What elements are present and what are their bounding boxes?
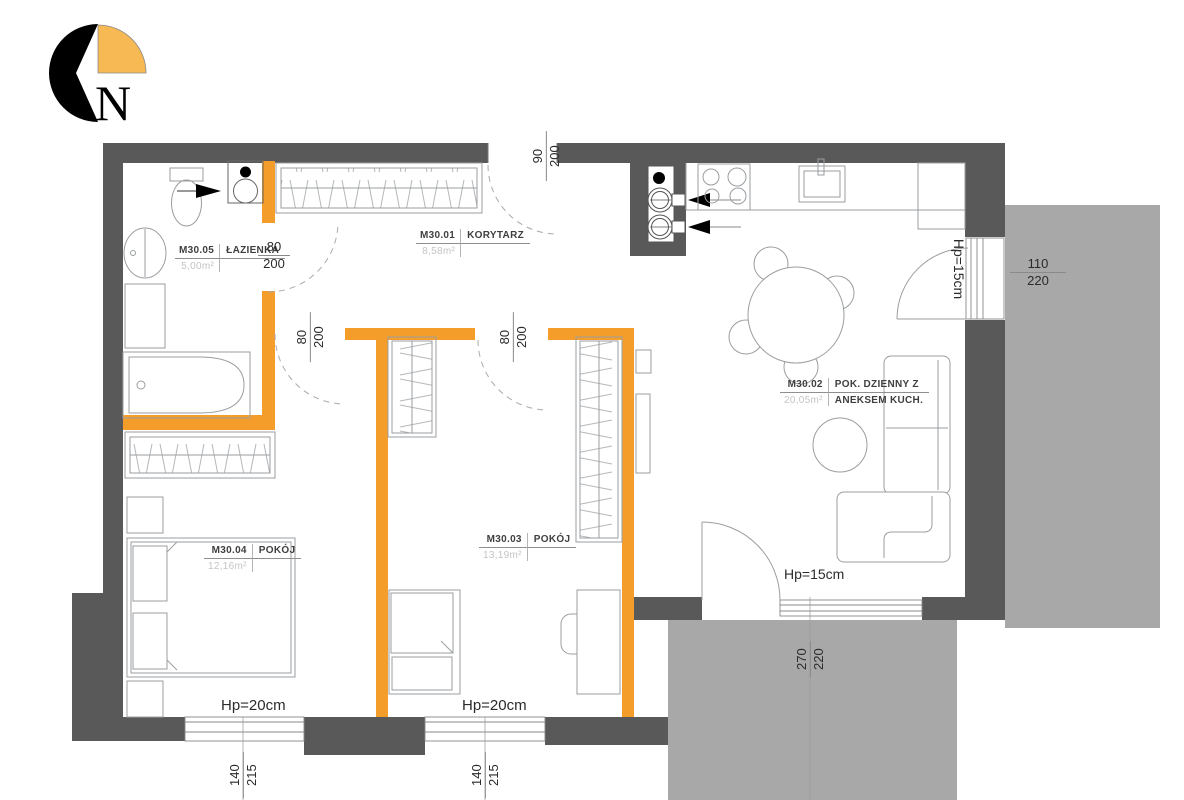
parapet-label-east: Hp=15cm [951,239,967,299]
kitchen-fixtures [648,159,965,242]
room-name: POKÓJ [252,544,302,559]
parapet-label-south: Hp=15cm [784,566,844,582]
room-area: 20,05m² [780,393,828,406]
dim-balcony-east: 110220 [1010,257,1066,287]
room-id: M30.04 [204,544,252,559]
bathroom-cabinet [125,284,165,348]
room-id: M30.05 [175,244,219,259]
room-name-line2: ANEKSEM KUCH. [828,393,929,406]
dim-window-left: 140215 [228,752,258,798]
room-label-room3: M30.03 POKÓJ 13,19m² [479,533,576,561]
dim-room3-door: 80200 [498,312,528,362]
window-south-living [780,600,922,616]
parapet-label-room4: Hp=20cm [221,697,286,714]
sofa [884,356,950,494]
dim-room4-door: 80200 [295,312,325,362]
dining-table [748,267,844,363]
room-label-living: M30.02 POK. DZIENNY Z 20,05m² ANEKSEM KU… [780,378,929,406]
pillow [133,613,167,669]
room-id: M30.02 [780,378,828,393]
nightstand [127,497,163,533]
floor-plan: N M30.05 ŁAZIENKA 5,00m² M30.01 KORYTARZ… [0,0,1184,800]
sofa-chaise [837,492,950,562]
tv-unit [636,394,650,473]
room-area: 13,19m² [479,548,527,561]
dim-window-right: 140215 [470,752,500,798]
corridor-wardrobe [276,163,482,213]
room-area: 8,58m² [416,244,460,257]
room-id: M30.03 [479,533,527,548]
room-id: M30.01 [416,229,460,244]
dim-entrance-door: 90200 [531,131,561,181]
room-name: KORYTARZ [460,229,530,244]
coffee-table [813,418,867,472]
floor-plan-linework [0,0,1184,800]
balcony-door-south-swing [702,522,780,600]
room-label-room4: M30.04 POKÓJ 12,16m² [204,544,301,572]
window-room4 [185,717,304,741]
room3-furniture [388,337,622,694]
single-bed [389,590,460,694]
fridge [918,163,965,229]
tv-unit [636,350,651,373]
room-label-corridor: M30.01 KORYTARZ 8,58m² [416,229,530,257]
room-name: POK. DZIENNY Z [828,378,929,393]
toilet-tank [170,168,203,181]
room-area: 5,00m² [175,259,219,272]
nightstand [127,681,163,717]
pillow [392,657,452,690]
desk [577,590,620,694]
vent-arrow-icon [196,184,221,198]
window-east [966,238,1004,319]
room-area: 12,16m² [204,559,252,572]
parapet-label-room3: Hp=20cm [462,697,527,714]
compass-north-label: N [95,78,131,128]
pillow [133,546,167,601]
bathtub [123,352,250,418]
room-name: POKÓJ [527,533,577,548]
room4-furniture [125,432,295,717]
vent-arrow-icon [688,220,710,234]
dim-balcony-south: 270220 [795,641,825,677]
bathroom-fixtures [123,161,263,418]
dim-bathroom-door: 80200 [258,240,290,270]
